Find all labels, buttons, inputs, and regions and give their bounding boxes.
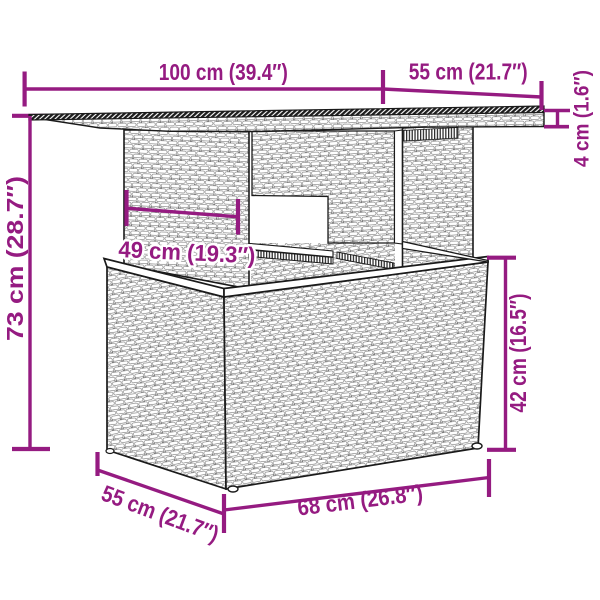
svg-text:42 cm (16.5″): 42 cm (16.5″) — [505, 294, 531, 413]
svg-text:4 cm (1.6″): 4 cm (1.6″) — [571, 70, 594, 167]
svg-text:100 cm (39.4″): 100 cm (39.4″) — [159, 59, 288, 85]
svg-text:55 cm (21.7″): 55 cm (21.7″) — [409, 59, 528, 85]
svg-text:73 cm (28.7″): 73 cm (28.7″) — [2, 176, 28, 341]
